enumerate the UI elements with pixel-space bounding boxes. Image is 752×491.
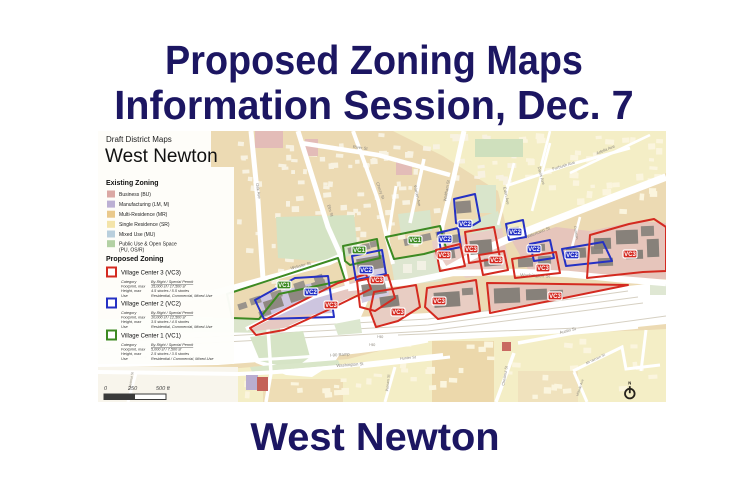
svg-text:Single Residence (SR): Single Residence (SR)	[119, 222, 170, 228]
svg-text:VC2: VC2	[528, 247, 540, 253]
svg-text:500 ft: 500 ft	[156, 386, 170, 392]
svg-text:Village Center 1 (VC1): Village Center 1 (VC1)	[121, 334, 181, 340]
svg-text:Height, max: Height, max	[121, 289, 142, 293]
svg-text:By-Right / Special Permit: By-Right / Special Permit	[151, 343, 194, 347]
svg-text:(PU, OS/R): (PU, OS/R)	[119, 248, 145, 254]
svg-text:Use: Use	[121, 325, 128, 329]
svg-text:3.5 stories / 4.5 stories: 3.5 stories / 4.5 stories	[151, 320, 189, 324]
svg-text:Multi-Residence (MR): Multi-Residence (MR)	[119, 212, 168, 218]
svg-text:I-90: I-90	[377, 335, 384, 339]
svg-text:Category: Category	[121, 311, 138, 315]
svg-text:Mixed Use (MU): Mixed Use (MU)	[119, 232, 155, 238]
svg-text:4.5 stories / 5.5 stories: 4.5 stories / 5.5 stories	[151, 289, 189, 293]
svg-text:VC3: VC3	[537, 266, 549, 272]
svg-text:By-Right / Special Permit: By-Right / Special Permit	[151, 280, 194, 284]
svg-text:Use: Use	[121, 357, 128, 361]
svg-text:VC2: VC2	[566, 253, 578, 259]
svg-text:Draft District Maps: Draft District Maps	[106, 135, 172, 144]
svg-text:VC2: VC2	[360, 268, 372, 274]
svg-text:Footprint, max: Footprint, max	[121, 285, 146, 289]
svg-text:VC2: VC2	[459, 222, 471, 228]
svg-text:VC3: VC3	[433, 299, 445, 305]
svg-text:10,000 sf / 12,500 sf: 10,000 sf / 12,500 sf	[151, 316, 186, 320]
svg-text:Footprint, max: Footprint, max	[121, 348, 146, 352]
svg-text:Category: Category	[121, 280, 138, 284]
svg-text:Business (BU): Business (BU)	[119, 192, 151, 198]
svg-text:Category: Category	[121, 343, 138, 347]
svg-text:I-90: I-90	[369, 343, 376, 347]
svg-text:Residential / Commercial, Mixe: Residential / Commercial, Mixed-Use	[151, 357, 213, 361]
svg-text:VC1: VC1	[353, 248, 365, 254]
svg-text:Residential, Commercial, Mixed: Residential, Commercial, Mixed-Use	[151, 325, 212, 329]
svg-text:VC3: VC3	[490, 258, 502, 264]
svg-text:Village Center 3 (VC3): Village Center 3 (VC3)	[121, 271, 181, 277]
svg-text:15,000 sf / 17,500 sf: 15,000 sf / 17,500 sf	[151, 285, 186, 289]
svg-text:Existing Zoning: Existing Zoning	[106, 180, 159, 187]
svg-text:Height, max: Height, max	[121, 320, 142, 324]
svg-text:VC3: VC3	[549, 294, 561, 300]
svg-text:West Newton: West Newton	[105, 146, 218, 167]
svg-text:VC3: VC3	[465, 247, 477, 253]
svg-text:VC3: VC3	[624, 252, 636, 258]
svg-text:VC1: VC1	[278, 283, 290, 289]
svg-text:N: N	[628, 381, 631, 386]
svg-text:5,000 sf / 7,500 sf: 5,000 sf / 7,500 sf	[151, 348, 182, 352]
svg-text:250: 250	[127, 386, 138, 392]
svg-text:Residential, Commercial, Mixed: Residential, Commercial, Mixed-Use	[151, 294, 212, 298]
svg-text:VC2: VC2	[509, 230, 521, 236]
svg-text:VC2: VC2	[305, 290, 317, 296]
svg-text:Use: Use	[121, 294, 128, 298]
svg-text:VC3: VC3	[392, 310, 404, 316]
svg-text:Height, max: Height, max	[121, 352, 142, 356]
svg-text:Footprint, max: Footprint, max	[121, 316, 146, 320]
svg-text:Village Center 2 (VC2): Village Center 2 (VC2)	[121, 302, 181, 308]
svg-text:VC3: VC3	[325, 303, 337, 309]
svg-text:VC2: VC2	[439, 237, 451, 243]
svg-text:VC1: VC1	[409, 238, 421, 244]
svg-text:Proposed Zoning: Proposed Zoning	[106, 256, 164, 263]
svg-text:Manufacturing (LM, M): Manufacturing (LM, M)	[119, 202, 170, 208]
svg-text:VC3: VC3	[371, 278, 383, 284]
svg-text:VC3: VC3	[438, 253, 450, 259]
svg-text:By-Right / Special Permit: By-Right / Special Permit	[151, 311, 194, 315]
svg-text:2.5 stories / 3.5 stories: 2.5 stories / 3.5 stories	[150, 352, 189, 356]
